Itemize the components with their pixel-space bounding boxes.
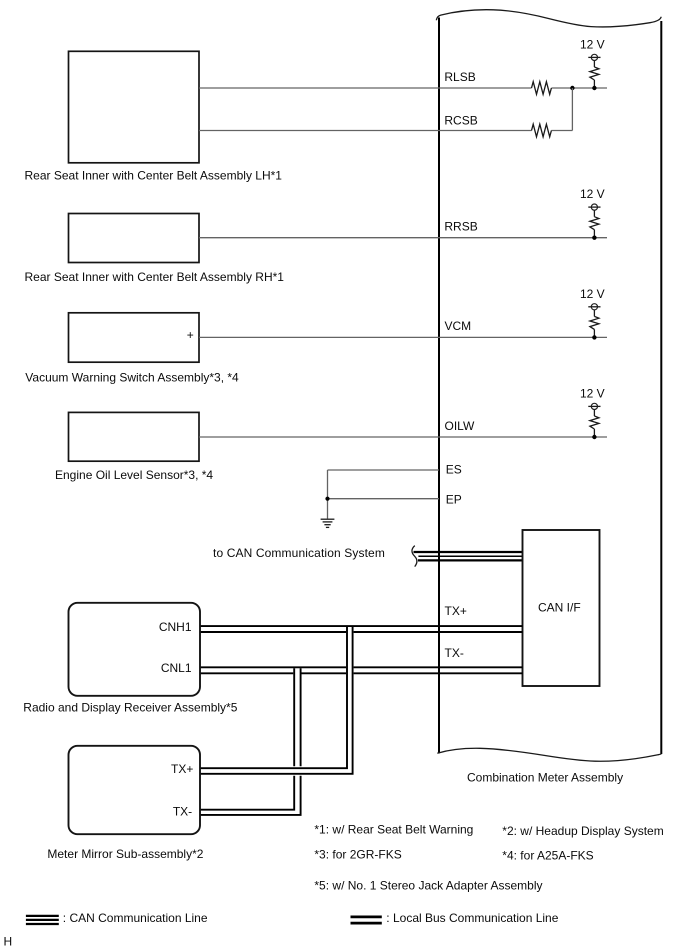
svg-text:12 V: 12 V <box>580 386 605 400</box>
svg-text:Radio and Display Receiver Ass: Radio and Display Receiver Assembly*5 <box>23 700 237 714</box>
svg-text:Meter Mirror Sub-assembly*2: Meter Mirror Sub-assembly*2 <box>47 847 203 861</box>
svg-text:CAN I/F: CAN I/F <box>538 601 581 615</box>
svg-text:RLSB: RLSB <box>444 70 475 84</box>
svg-text:H: H <box>4 934 13 948</box>
svg-text:*5: w/ No. 1 Stereo Jack Adapt: *5: w/ No. 1 Stereo Jack Adapter Assembl… <box>314 879 542 893</box>
svg-text:to CAN Communication System: to CAN Communication System <box>213 546 385 560</box>
svg-text:*1: w/ Rear Seat Belt Warning: *1: w/ Rear Seat Belt Warning <box>314 823 473 837</box>
svg-text:Engine Oil Level Sensor*3, *4: Engine Oil Level Sensor*3, *4 <box>55 468 213 482</box>
svg-text:Vacuum Warning Switch Assembly: Vacuum Warning Switch Assembly*3, *4 <box>25 371 239 385</box>
svg-text:*2: w/ Headup Display System: *2: w/ Headup Display System <box>502 824 663 838</box>
svg-text:OILW: OILW <box>445 419 475 433</box>
svg-text:RCSB: RCSB <box>444 113 477 127</box>
svg-text:*4: for A25A-FKS: *4: for A25A-FKS <box>502 849 593 863</box>
svg-text:12 V: 12 V <box>580 187 605 201</box>
svg-text:Rear Seat Inner with Center Be: Rear Seat Inner with Center Belt Assembl… <box>25 270 285 284</box>
svg-text:TX+: TX+ <box>445 604 467 618</box>
svg-text:CNH1: CNH1 <box>159 620 192 634</box>
svg-text:*3: for 2GR-FKS: *3: for 2GR-FKS <box>314 847 401 861</box>
svg-text:CNL1: CNL1 <box>161 661 192 675</box>
svg-text:TX-: TX- <box>445 646 464 660</box>
svg-text:ES: ES <box>446 462 462 476</box>
svg-text:: CAN Communication Line: : CAN Communication Line <box>63 911 208 925</box>
svg-text:: Local Bus Communication Line: : Local Bus Communication Line <box>386 911 558 925</box>
svg-text:12 V: 12 V <box>580 37 605 51</box>
svg-text:VCM: VCM <box>445 319 472 333</box>
svg-text:+: + <box>187 328 194 342</box>
svg-text:RRSB: RRSB <box>444 220 477 234</box>
svg-text:EP: EP <box>446 493 462 507</box>
svg-text:TX+: TX+ <box>171 762 193 776</box>
svg-text:Combination Meter Assembly: Combination Meter Assembly <box>467 770 623 784</box>
svg-text:TX-: TX- <box>173 804 192 818</box>
svg-text:Rear Seat Inner with Center Be: Rear Seat Inner with Center Belt Assembl… <box>25 169 283 183</box>
svg-text:12 V: 12 V <box>580 287 605 301</box>
